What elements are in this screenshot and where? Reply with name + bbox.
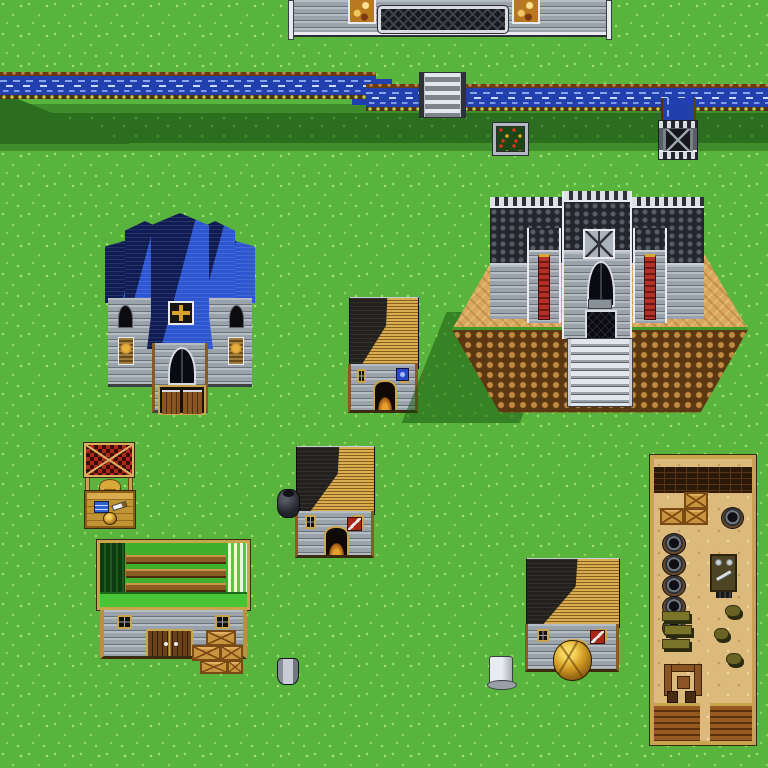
town-map — [0, 0, 768, 768]
flower-bed — [496, 126, 525, 152]
tavern-counter[interactable] — [710, 554, 737, 592]
tavern-entrance-wall-left — [654, 703, 700, 741]
crate[interactable] — [220, 645, 243, 661]
church-arch-window-right — [229, 305, 244, 328]
tavern-barrel[interactable] — [662, 575, 686, 597]
battlement-center — [564, 191, 630, 202]
tavern-bench[interactable] — [662, 639, 690, 649]
desk-chair[interactable] — [685, 691, 696, 703]
tavern-desk[interactable] — [664, 664, 700, 702]
house-2-roof-lit — [297, 447, 374, 514]
flower-garden-plot[interactable] — [492, 122, 529, 156]
wall-post-left — [288, 0, 294, 40]
cloth-wares[interactable] — [94, 501, 109, 513]
tavern-stool[interactable] — [726, 653, 742, 665]
tavern-crate[interactable] — [684, 508, 708, 525]
tavern-barrel[interactable] — [721, 507, 744, 529]
stone-well-bucket[interactable] — [277, 658, 299, 685]
banner-tower-left-cap — [529, 228, 559, 252]
red-banner-right — [644, 254, 656, 320]
scales-icon — [726, 559, 733, 566]
tavern-barrel[interactable] — [662, 554, 686, 576]
house-1-window-left — [357, 369, 366, 383]
church[interactable] — [105, 213, 255, 413]
house-1-roof — [349, 297, 420, 369]
tavern-crate[interactable] — [660, 508, 684, 525]
tavern-stool[interactable] — [714, 628, 729, 640]
drain-grate[interactable] — [658, 120, 698, 160]
stained-glass-window-left — [348, 0, 376, 24]
stone-bridge[interactable] — [419, 72, 466, 118]
drain-battlement-top — [659, 121, 697, 128]
house-cottage-1[interactable] — [348, 297, 418, 413]
church-door-right[interactable] — [183, 390, 201, 414]
castle-fan-window — [583, 229, 615, 259]
desk-chair[interactable] — [667, 691, 678, 703]
house-2-wall — [295, 511, 374, 558]
crate-stack-outside[interactable] — [192, 630, 243, 674]
castle-wing-wall-right — [667, 265, 704, 319]
black-cauldron[interactable] — [277, 489, 300, 518]
warehouse-doors[interactable] — [146, 629, 193, 656]
tavern-entrance-wall-right — [710, 703, 752, 741]
drain-iron-grate — [663, 129, 693, 151]
crate[interactable] — [206, 630, 236, 646]
desk-table — [677, 676, 690, 689]
castle-wing-wall-left — [490, 265, 527, 319]
warehouse-window-left — [117, 615, 132, 630]
house-3-window-left — [537, 629, 549, 642]
castle-staircase[interactable] — [568, 339, 632, 406]
tavern-interior[interactable] — [650, 455, 756, 745]
battlement-right — [632, 197, 704, 208]
church-door-left[interactable] — [162, 390, 180, 414]
city-wall — [290, 0, 610, 37]
rose-window — [168, 301, 194, 325]
banner-tower-left — [527, 228, 561, 323]
dagger-wares[interactable] — [111, 501, 127, 511]
tavern-back-wall — [654, 467, 752, 493]
scales-icon — [715, 559, 722, 566]
stone-marker[interactable] — [489, 656, 513, 685]
church-arch-window-left — [118, 305, 133, 328]
house-1-roof-lit — [350, 298, 419, 368]
tavern-bench[interactable] — [664, 625, 692, 635]
house-2-door[interactable] — [324, 526, 350, 555]
bridge-deck[interactable] — [424, 73, 461, 117]
crate[interactable] — [192, 645, 221, 661]
church-doors[interactable] — [158, 385, 206, 415]
tavern-barrel[interactable] — [662, 533, 686, 555]
tavern-crate[interactable] — [684, 492, 708, 509]
castle-balcony — [588, 299, 612, 309]
house-2-knife-sign[interactable] — [347, 517, 362, 531]
stall-canopy — [84, 443, 134, 477]
warehouse-window-right — [215, 615, 230, 630]
stall-counter[interactable] — [85, 491, 135, 528]
house-1-door[interactable] — [373, 380, 396, 410]
wall-post-right — [606, 0, 612, 40]
lattice-grate-window — [378, 6, 508, 33]
market-stall[interactable] — [84, 443, 134, 525]
battlement-left — [490, 197, 562, 208]
castle-center-tower — [562, 191, 632, 339]
house-3-knife-sign[interactable] — [590, 630, 605, 644]
roof-beam-1 — [126, 555, 226, 564]
red-banner-left — [538, 254, 550, 320]
warehouse-roof-eave — [100, 592, 247, 607]
drain-battlement-bottom — [659, 150, 697, 159]
roof-beam-2 — [126, 569, 226, 578]
house-2-roof — [296, 446, 375, 515]
house-2-window-left — [305, 515, 315, 528]
sword-icon — [716, 570, 732, 581]
house-3-roof-lit — [527, 559, 619, 627]
banner-tower-right-cap — [635, 228, 665, 252]
stained-glass-window-right — [512, 0, 540, 24]
warehouse-roof — [97, 540, 250, 610]
river-west-segment — [0, 75, 376, 96]
tavern-bench[interactable] — [662, 611, 690, 621]
gold-boulder[interactable] — [553, 640, 592, 681]
crate[interactable] — [200, 660, 228, 674]
house-cottage-2[interactable] — [295, 446, 374, 558]
castle[interactable] — [490, 191, 704, 406]
house-3-roof — [526, 558, 620, 628]
pot-wares[interactable] — [103, 512, 117, 525]
church-stained-window-left — [118, 337, 134, 365]
banner-tower-right — [633, 228, 667, 323]
church-roof-center-tower — [147, 213, 213, 349]
roof-beam-3 — [126, 583, 226, 592]
church-stained-window-right — [228, 337, 244, 365]
grass-shade-edge-bottom — [0, 143, 768, 151]
house-1-blue-ornament[interactable] — [396, 368, 409, 381]
tavern-stool[interactable] — [725, 605, 741, 617]
crate[interactable] — [227, 660, 243, 674]
